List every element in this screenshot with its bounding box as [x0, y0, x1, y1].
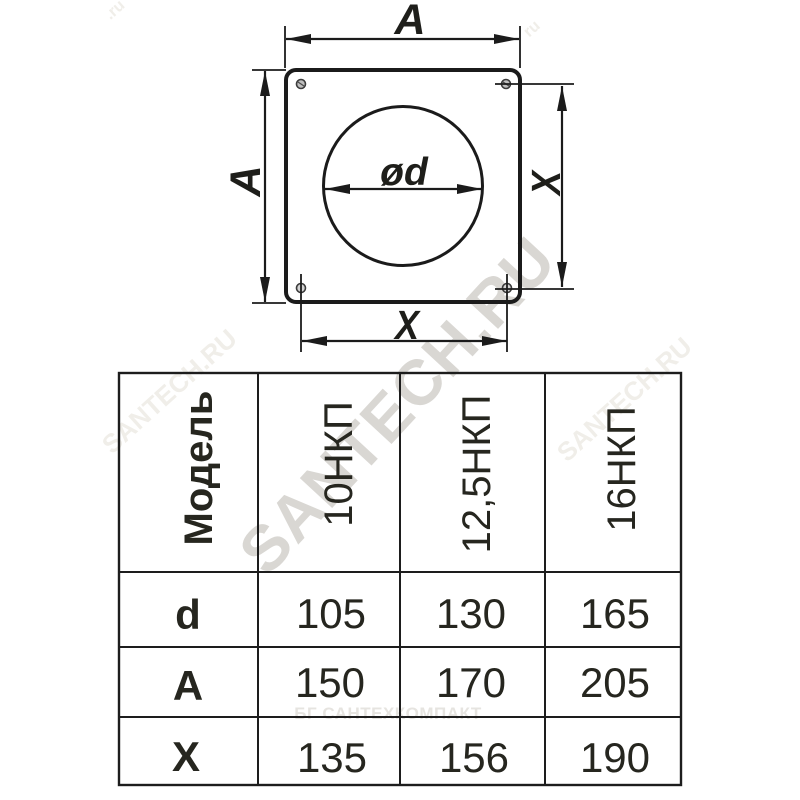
svg-text:156: 156	[439, 734, 509, 781]
svg-text:150: 150	[295, 659, 365, 706]
svg-text:X: X	[393, 302, 421, 348]
svg-text:130: 130	[436, 590, 506, 637]
svg-text:170: 170	[436, 659, 506, 706]
svg-text:X: X	[523, 169, 569, 197]
svg-text:БГ САНТЕХКОМПАКТ: БГ САНТЕХКОМПАКТ	[294, 704, 482, 723]
svg-text:16НКП: 16НКП	[600, 406, 644, 531]
svg-text:X: X	[172, 733, 200, 780]
svg-text:205: 205	[580, 659, 650, 706]
svg-text:A: A	[173, 662, 203, 709]
svg-text:A: A	[222, 165, 270, 197]
svg-text:135: 135	[297, 734, 367, 781]
svg-text:105: 105	[296, 590, 366, 637]
svg-text:Модель: Модель	[177, 391, 221, 546]
svg-text:165: 165	[580, 590, 650, 637]
svg-text:12,5НКП: 12,5НКП	[455, 395, 499, 554]
svg-text:A: A	[393, 0, 425, 44]
svg-text:190: 190	[580, 734, 650, 781]
svg-text:10НКП: 10НКП	[317, 401, 361, 526]
svg-text:d: d	[175, 591, 201, 638]
svg-text:ød: ød	[380, 151, 429, 194]
